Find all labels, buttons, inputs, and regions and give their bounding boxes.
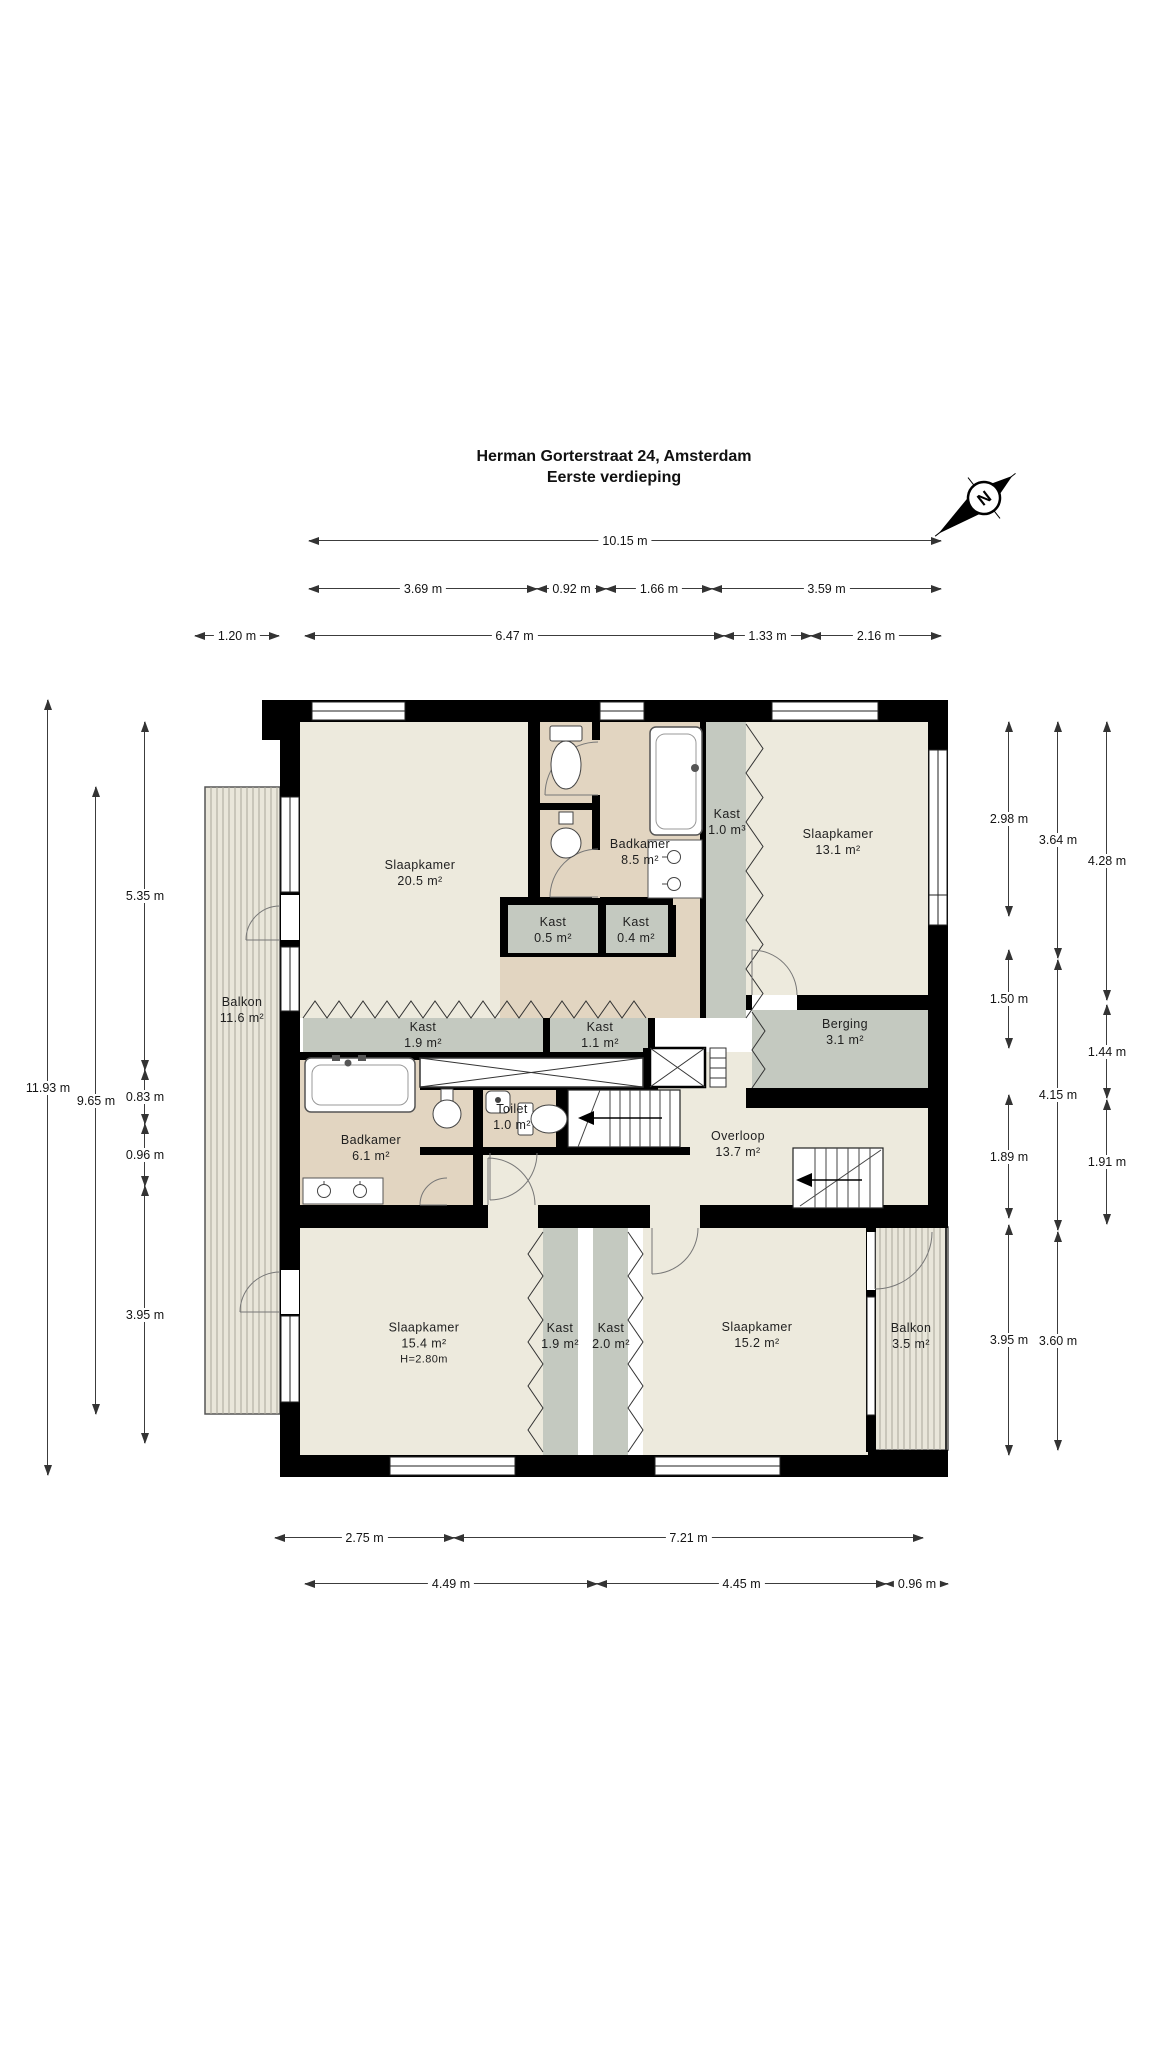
dimension-vertical: 3.95 m	[1008, 1225, 1009, 1455]
dimension-horizontal: 0.92 m	[537, 588, 606, 589]
dimension-arrow-icon	[1054, 1231, 1062, 1242]
dimension-arrow-icon	[1005, 1224, 1013, 1235]
dimension-label: 0.92 m	[548, 582, 594, 596]
dimension-label: 1.20 m	[214, 629, 260, 643]
dimension-label: 3.59 m	[803, 582, 849, 596]
dimension-arrow-icon	[92, 1404, 100, 1415]
dimension-horizontal: 4.49 m	[305, 1583, 597, 1584]
dimension-vertical: 0.96 m	[144, 1124, 145, 1186]
dimension-label: 5.35 m	[122, 889, 168, 903]
dimension-label: 1.66 m	[636, 582, 682, 596]
dimension-vertical: 1.50 m	[1008, 950, 1009, 1048]
dimension-arrow-icon	[1103, 1099, 1111, 1110]
room-label-slaapkamer-15-2: Slaapkamer15.2 m²	[722, 1319, 793, 1352]
dimension-arrow-icon	[596, 1580, 607, 1588]
room-label-kast-0-5: Kast0.5 m²	[534, 914, 572, 947]
dimension-arrow-icon	[141, 721, 149, 732]
dimension-vertical: 1.91 m	[1106, 1100, 1107, 1224]
dimension-arrow-icon	[1103, 1004, 1111, 1015]
dimension-vertical: 9.65 m	[95, 787, 96, 1414]
plan-title-floor: Eerste verdieping	[476, 467, 751, 488]
dimension-horizontal: 1.20 m	[195, 635, 279, 636]
dimension-label: 4.45 m	[718, 1577, 764, 1591]
dimension-arrow-icon	[194, 632, 205, 640]
dimension-vertical: 3.64 m	[1057, 722, 1058, 958]
dimension-arrow-icon	[141, 1185, 149, 1196]
dimension-label: 2.75 m	[341, 1531, 387, 1545]
dimension-arrow-icon	[141, 1069, 149, 1080]
dimension-arrow-icon	[92, 786, 100, 797]
dimension-label: 3.60 m	[1035, 1334, 1081, 1348]
dimension-arrow-icon	[304, 632, 315, 640]
dimension-arrow-icon	[1005, 1038, 1013, 1049]
dimension-label: 1.91 m	[1084, 1155, 1130, 1169]
room-label-berging-3-1: Berging3.1 m²	[822, 1016, 868, 1049]
dimension-arrow-icon	[711, 585, 722, 593]
plan-canvas: N Herman Gorterstraat 24, Amsterdam Eers…	[0, 0, 1152, 2048]
dimension-arrow-icon	[44, 699, 52, 710]
dimension-arrow-icon	[1005, 1445, 1013, 1456]
dimension-arrow-icon	[723, 632, 734, 640]
dimension-arrow-icon	[308, 585, 319, 593]
room-label-badkamer-6-1: Badkamer6.1 m²	[341, 1132, 401, 1165]
dimension-arrow-icon	[141, 1433, 149, 1444]
dimension-label: 3.95 m	[986, 1333, 1032, 1347]
dimension-horizontal: 10.15 m	[309, 540, 941, 541]
dimension-arrow-icon	[274, 1534, 285, 1542]
dimension-label: 2.98 m	[986, 812, 1032, 826]
dimension-label: 2.16 m	[853, 629, 899, 643]
plan-title-address: Herman Gorterstraat 24, Amsterdam	[476, 446, 751, 467]
dimension-label: 3.95 m	[122, 1308, 168, 1322]
dimension-label: 1.44 m	[1084, 1045, 1130, 1059]
dimension-arrow-icon	[1005, 721, 1013, 732]
dimension-arrow-icon	[141, 1123, 149, 1134]
dimension-arrow-icon	[1054, 1440, 1062, 1451]
dimension-arrow-icon	[1005, 949, 1013, 960]
dimension-arrow-icon	[1103, 990, 1111, 1001]
dimension-label: 3.69 m	[400, 582, 446, 596]
dimension-label: 4.28 m	[1084, 854, 1130, 868]
dimension-label: 4.15 m	[1035, 1088, 1081, 1102]
dimension-arrow-icon	[1054, 948, 1062, 959]
dimension-horizontal: 3.59 m	[712, 588, 941, 589]
balcony-left	[205, 787, 280, 1414]
dimension-vertical: 3.60 m	[1057, 1232, 1058, 1450]
room-label-slaapkamer-20-5: Slaapkamer20.5 m²	[385, 857, 456, 890]
room-label-kast-0-4: Kast0.4 m²	[617, 914, 655, 947]
dimension-arrow-icon	[931, 537, 942, 545]
dimension-arrow-icon	[44, 1465, 52, 1476]
room-label-badkamer-8-5: Badkamer8.5 m²	[610, 836, 670, 869]
dimension-label: 0.83 m	[122, 1090, 168, 1104]
dimension-arrow-icon	[536, 585, 547, 593]
room-label-slaapkamer-13-1: Slaapkamer13.1 m²	[803, 826, 874, 859]
bathtub-icon	[305, 1055, 415, 1112]
dimension-arrow-icon	[1103, 1088, 1111, 1099]
dimension-label: 1.50 m	[986, 992, 1032, 1006]
dimension-vertical: 2.98 m	[1008, 722, 1009, 916]
dimension-arrow-icon	[1103, 721, 1111, 732]
dimension-vertical: 5.35 m	[144, 722, 145, 1070]
dimension-label: 6.47 m	[491, 629, 537, 643]
dimension-vertical: 11.93 m	[47, 700, 48, 1475]
dimension-horizontal: 3.69 m	[309, 588, 537, 589]
dimension-arrow-icon	[1054, 721, 1062, 732]
plan-title: Herman Gorterstraat 24, Amsterdam Eerste…	[476, 446, 751, 488]
dimension-arrow-icon	[931, 585, 942, 593]
dimension-vertical: 1.89 m	[1008, 1095, 1009, 1218]
dimension-arrow-icon	[1005, 1094, 1013, 1105]
dimension-vertical: 0.83 m	[144, 1070, 145, 1124]
dimension-arrow-icon	[308, 537, 319, 545]
floorplan-drawing: N	[0, 0, 1152, 2048]
dimension-label: 1.33 m	[744, 629, 790, 643]
bathtub-icon	[650, 727, 702, 835]
dimension-vertical: 3.95 m	[144, 1186, 145, 1443]
room-label-balkon-3-5: Balkon3.5 m²	[891, 1320, 932, 1353]
room-label-kast-1-9-onder: Kast1.9 m²	[541, 1320, 579, 1353]
dimension-horizontal: 1.33 m	[724, 635, 811, 636]
dimension-arrow-icon	[269, 632, 280, 640]
toilet-icon	[550, 726, 582, 789]
dimension-horizontal: 7.21 m	[454, 1537, 923, 1538]
dimension-arrow-icon	[1103, 1214, 1111, 1225]
dimension-label: 10.15 m	[598, 534, 651, 548]
room-label-overloop-13-7: Overloop13.7 m²	[711, 1128, 765, 1161]
dimension-label: 0.96 m	[894, 1577, 940, 1591]
dimension-horizontal: 4.45 m	[597, 1583, 886, 1584]
dimension-arrow-icon	[810, 632, 821, 640]
dimension-arrow-icon	[304, 1580, 315, 1588]
room-label-kast-1-0: Kast1.0 m³	[708, 806, 746, 839]
dimension-label: 11.93 m	[22, 1081, 74, 1095]
dimension-label: 4.49 m	[428, 1577, 474, 1591]
dimension-vertical: 1.44 m	[1106, 1005, 1107, 1098]
dimension-label: 7.21 m	[665, 1531, 711, 1545]
room-label-balkon-11-6: Balkon11.6 m²	[220, 994, 264, 1027]
dimension-label: 0.96 m	[122, 1148, 168, 1162]
dimension-arrow-icon	[1054, 1220, 1062, 1231]
vanity-icon	[303, 1178, 383, 1204]
dimension-label: 3.64 m	[1035, 833, 1081, 847]
dimension-horizontal: 0.96 m	[886, 1583, 948, 1584]
dimension-arrow-icon	[1005, 1208, 1013, 1219]
dimension-horizontal: 1.66 m	[606, 588, 712, 589]
dimension-arrow-icon	[605, 585, 616, 593]
dimension-label: 9.65 m	[73, 1094, 119, 1108]
dimension-horizontal: 6.47 m	[305, 635, 724, 636]
dimension-vertical: 4.28 m	[1106, 722, 1107, 1000]
dimension-arrow-icon	[453, 1534, 464, 1542]
dimension-label: 1.89 m	[986, 1150, 1032, 1164]
room-label-toilet-1-0: Toilet1.0 m²	[493, 1101, 531, 1134]
dimension-vertical: 4.15 m	[1057, 960, 1058, 1230]
dimension-arrow-icon	[1054, 959, 1062, 970]
dimension-arrow-icon	[913, 1534, 924, 1542]
room-label-kast-2-0: Kast2.0 m²	[592, 1320, 630, 1353]
dimension-horizontal: 2.16 m	[811, 635, 941, 636]
dimension-horizontal: 2.75 m	[275, 1537, 454, 1538]
room-label-kast-1-1: Kast1.1 m²	[581, 1019, 619, 1052]
dimension-arrow-icon	[1005, 906, 1013, 917]
room-label-slaapkamer-15-4: Slaapkamer15.4 m²H=2.80m	[389, 1320, 460, 1367]
room-label-kast-1-9-boven: Kast1.9 m²	[404, 1019, 442, 1052]
dimension-arrow-icon	[931, 632, 942, 640]
